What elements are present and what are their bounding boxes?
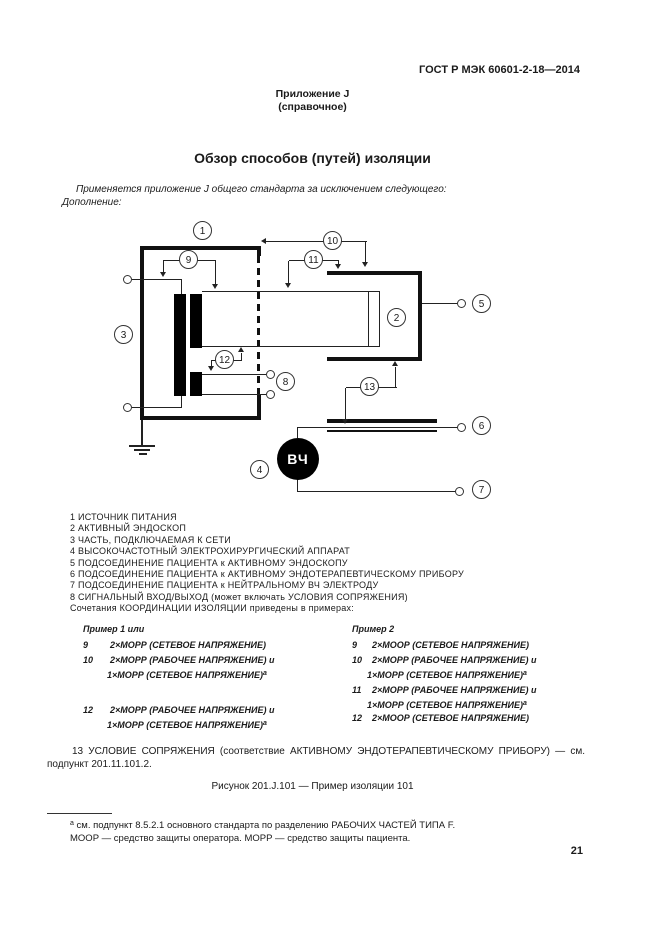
- endoscope-tube-top: [202, 291, 380, 292]
- callout-10: 10: [323, 231, 342, 250]
- callout-9-leg-right: [215, 261, 216, 284]
- callout-9: 9: [179, 250, 198, 269]
- example-1-row-12: 122×МОРР (РАБОЧЕЕ НАПРЯЖЕНИЕ) и: [83, 705, 274, 715]
- power-box-right-stub-top: [257, 246, 261, 256]
- callout-13: 13: [360, 377, 379, 396]
- power-box-top-border: [140, 246, 261, 250]
- page-number: 21: [0, 845, 583, 857]
- footnote-line-1: a см. подпункт 8.5.2.1 основного стандар…: [70, 820, 455, 831]
- signal-wire-1: [202, 374, 266, 375]
- arrow-icon: [160, 272, 166, 277]
- callout-12-leg-right: [241, 353, 242, 361]
- callout-6: 6: [472, 416, 491, 435]
- callout-13-leg-right: [395, 367, 396, 388]
- callout-5: 5: [472, 294, 491, 313]
- mains-terminal-top: [123, 275, 132, 284]
- legend-item-3: 3 ЧАСТЬ, ПОДКЛЮЧАЕМАЯ К СЕТИ: [70, 535, 464, 546]
- callout-8: 8: [276, 372, 295, 391]
- legend-item-7: 7 ПОДСОЕДИНЕНИЕ ПАЦИЕНТА к НЕЙТРАЛЬНОМУ …: [70, 580, 464, 591]
- callout-2: 2: [387, 308, 406, 327]
- endoscope-tube-inner-line: [368, 291, 369, 347]
- legend-item-1: 1 ИСТОЧНИК ПИТАНИЯ: [70, 512, 464, 523]
- arrow-icon: [392, 361, 398, 366]
- annex-type: (справочное): [0, 101, 625, 114]
- hf-wire-top-stub: [297, 427, 298, 438]
- callout-1: 1: [193, 221, 212, 240]
- arrow-icon: [342, 419, 348, 424]
- hf-plate-bottom: [327, 430, 437, 432]
- legend-item-5: 5 ПОДСОЕДИНЕНИЕ ПАЦИЕНТА к АКТИВНОМУ ЭНД…: [70, 558, 464, 569]
- document-page: ГОСТ Р МЭК 60601-2-18—2014 Приложение J …: [0, 0, 661, 935]
- mains-wire-top: [132, 279, 182, 280]
- callout-7: 7: [472, 480, 491, 499]
- patient-wire-5: [422, 303, 458, 304]
- transformer-secondary-bottom-bar: [190, 372, 202, 396]
- callout-10-leg: [365, 242, 366, 262]
- ground-icon-line-2: [134, 449, 150, 451]
- patient-wire-7: [297, 491, 456, 492]
- example-2-row-11: 112×МОРР (РАБОЧЕЕ НАПРЯЖЕНИЕ) и: [352, 685, 536, 695]
- callout-10-line: [266, 241, 367, 242]
- signal-terminal-1: [266, 370, 275, 379]
- signal-wire-2: [202, 394, 266, 395]
- example-2-row-10-cont: 1×МОРР (СЕТЕВОЕ НАПРЯЖЕНИЕ)a: [367, 670, 527, 680]
- intro-line-2: Дополнение:: [62, 197, 122, 208]
- arrow-icon: [208, 366, 214, 371]
- endoscope-box-bottom-border: [327, 357, 422, 361]
- example-2-row-10: 102×МОРР (РАБОЧЕЕ НАПРЯЖЕНИЕ) и: [352, 655, 536, 665]
- example-2-row-11-cont: 1×МОРР (СЕТЕВОЕ НАПРЯЖЕНИЕ)a: [367, 700, 527, 710]
- footnote-line-2: МООР — средство защиты оператора. МОРР —…: [70, 833, 410, 844]
- patient-terminal-7: [455, 487, 464, 496]
- footnote-rule: [47, 813, 112, 814]
- example-1-row-10-cont: 1×МОРР (СЕТЕВОЕ НАПРЯЖЕНИЕ)a: [107, 670, 267, 680]
- annex-name: Приложение J: [0, 88, 625, 101]
- mains-wire-bottom: [132, 407, 182, 408]
- legend-item-4: 4 ВЫСОКОЧАСТОТНЫЙ ЭЛЕКТРОХИРУРГИЧЕСКИЙ А…: [70, 546, 464, 557]
- callout-11-leg-left: [288, 261, 289, 283]
- footnote-marker: a: [70, 820, 74, 827]
- hf-generator-circle: ВЧ: [277, 438, 319, 480]
- mains-wire-bottom-rise: [181, 395, 182, 408]
- standard-number: ГОСТ Р МЭК 60601-2-18—2014: [0, 64, 580, 76]
- example-1-row-9: 92×МОРР (СЕТЕВОЕ НАПРЯЖЕНИЕ): [83, 640, 266, 650]
- power-box-left-border: [140, 246, 144, 420]
- arrow-icon: [238, 347, 244, 352]
- endoscope-tube-bottom: [202, 346, 380, 347]
- isolation-boundary-dashed-line: [257, 256, 260, 396]
- ground-stem: [141, 420, 143, 446]
- power-box-right-stub-bottom: [257, 394, 261, 420]
- example-1-row-12-cont: 1×МОРР (СЕТЕВОЕ НАПРЯЖЕНИЕ)a: [107, 720, 267, 730]
- annex-heading: Приложение J (справочное): [0, 88, 625, 113]
- ground-icon-line-3: [139, 453, 147, 455]
- signal-terminal-2: [266, 390, 275, 399]
- arrow-icon: [261, 238, 266, 244]
- legend-item-2: 2 АКТИВНЫЙ ЭНДОСКОП: [70, 523, 464, 534]
- example-2-header: Пример 2: [352, 624, 394, 634]
- callout-11: 11: [304, 250, 323, 269]
- ground-icon: [129, 445, 155, 447]
- endoscope-box-top-border: [327, 271, 422, 275]
- arrow-icon: [212, 284, 218, 289]
- diagram-legend: 1 ИСТОЧНИК ПИТАНИЯ 2 АКТИВНЫЙ ЭНДОСКОП 3…: [70, 512, 464, 615]
- endoscope-tube-end: [379, 291, 380, 347]
- callout-9-leg-left: [163, 261, 164, 272]
- transformer-secondary-top-bar: [190, 294, 202, 348]
- callout-4: 4: [250, 460, 269, 479]
- patient-terminal-6: [457, 423, 466, 432]
- legend-item-6: 6 ПОДСОЕДИНЕНИЕ ПАЦИЕНТА к АКТИВНОМУ ЭНД…: [70, 569, 464, 580]
- endoscope-box-right-border: [418, 271, 422, 361]
- callout-13-leg-left: [345, 388, 346, 419]
- patient-terminal-5: [457, 299, 466, 308]
- arrow-icon: [285, 283, 291, 288]
- mains-terminal-bottom: [123, 403, 132, 412]
- intro-line-1: Применяется приложение J общего стандарт…: [76, 184, 447, 195]
- legend-note: Сочетания КООРДИНАЦИИ ИЗОЛЯЦИИ приведены…: [70, 603, 464, 614]
- arrow-icon: [362, 262, 368, 267]
- example-2-row-12: 122×МООР (СЕТЕВОЕ НАПРЯЖЕНИЕ): [352, 713, 529, 723]
- example-1-header: Пример 1 или: [83, 624, 144, 634]
- example-1-row-10: 102×МОРР (РАБОЧЕЕ НАПРЯЖЕНИЕ) и: [83, 655, 274, 665]
- arrow-icon: [335, 264, 341, 269]
- figure-caption: Рисунок 201.J.101 — Пример изоляции 101: [0, 781, 625, 792]
- coupling-condition-note: 13 УСЛОВИЕ СОПРЯЖЕНИЯ (соответствие АКТИ…: [47, 745, 585, 771]
- callout-3: 3: [114, 325, 133, 344]
- page-title: Обзор способов (путей) изоляции: [0, 150, 625, 166]
- patient-wire-6: [297, 427, 458, 428]
- transformer-primary-bar: [174, 294, 186, 396]
- legend-item-8: 8 СИГНАЛЬНЫЙ ВХОД/ВЫХОД (может включать …: [70, 592, 464, 603]
- example-2-row-9: 92×МООР (СЕТЕВОЕ НАПРЯЖЕНИЕ): [352, 640, 529, 650]
- callout-12: 12: [215, 350, 234, 369]
- power-box-bottom-border: [140, 416, 261, 420]
